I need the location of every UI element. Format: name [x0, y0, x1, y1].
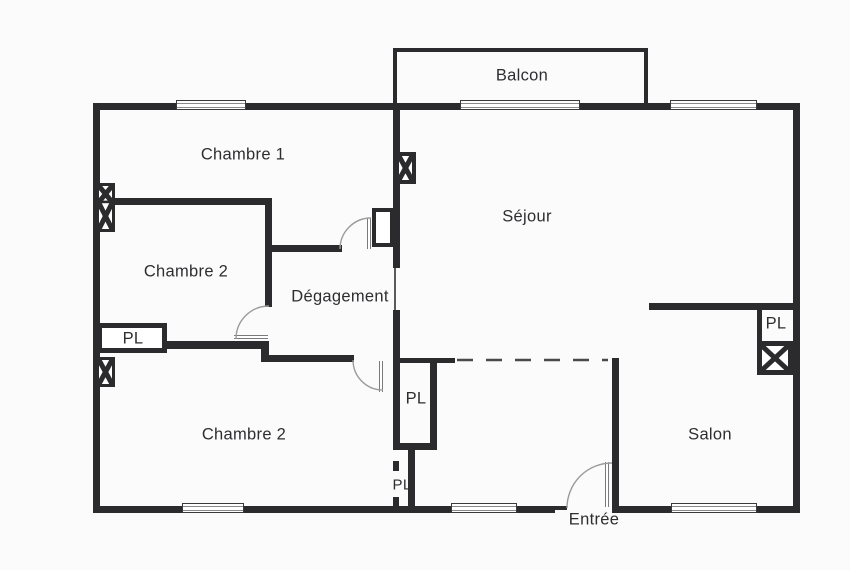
door-leaf-entree	[605, 462, 609, 507]
window-symbol	[670, 100, 757, 110]
door-leaf-chambre2	[234, 335, 268, 339]
room-label-chambre2-bottom: Chambre 2	[202, 426, 286, 445]
balcony-wall-left	[393, 48, 397, 107]
small-duct-box	[372, 208, 394, 247]
wall-bottom-jamb	[555, 506, 567, 510]
window-pane	[461, 103, 579, 108]
closet-label-pl-center: PL	[406, 390, 427, 409]
balcony-wall-top	[393, 48, 648, 52]
window-pane	[452, 506, 516, 511]
duct-shaft-icon	[395, 152, 416, 184]
wall-chambre2mid-top	[115, 198, 272, 205]
wall-degagement-north	[265, 245, 342, 252]
wall-pl-lower-jamb-top	[393, 461, 399, 471]
wall-left	[93, 103, 100, 513]
window-symbol	[451, 503, 517, 513]
window-pane	[177, 103, 245, 108]
room-label-degagement: Dégagement	[291, 288, 388, 307]
duct-shaft-icon	[96, 357, 115, 387]
wall-center-lower	[393, 358, 400, 450]
wall-center-opening	[394, 268, 396, 310]
wall-pl-center-right	[430, 358, 437, 450]
window-pane	[671, 103, 756, 108]
room-label-balcon: Balcon	[496, 67, 548, 86]
room-label-chambre1: Chambre 1	[201, 146, 285, 165]
wall-pl-center-bottom	[393, 443, 437, 450]
closet-label-pl-left: PL	[123, 330, 144, 349]
window-symbol	[460, 100, 580, 110]
wall-pl-center-top	[397, 358, 455, 363]
duct-shaft-icon	[757, 341, 793, 375]
closet-label-pl-lower: PL	[393, 477, 412, 494]
closet-label-pl-right: PL	[766, 315, 787, 334]
wall-chambre2mid-right	[265, 198, 272, 307]
window-pane	[672, 506, 756, 511]
wall-pl-right-side	[757, 308, 762, 343]
door-arcs-layer	[0, 0, 850, 570]
door-leaf-chambre1	[367, 218, 371, 249]
room-label-entree: Entrée	[569, 511, 619, 530]
room-label-sejour: Séjour	[502, 208, 552, 227]
wall-pl-lower-jamb-bot	[393, 497, 399, 506]
window-symbol	[671, 503, 757, 513]
window-symbol	[182, 503, 244, 513]
wall-sejour-salon	[649, 303, 793, 310]
wall-center-mid	[393, 310, 400, 363]
window-symbol	[176, 100, 246, 110]
balcony-wall-right	[644, 48, 648, 107]
room-label-chambre2-mid: Chambre 2	[144, 263, 228, 282]
wall-center-upper	[393, 103, 400, 268]
wall-salon-left	[612, 358, 619, 507]
door-leaf-chambre2b	[379, 361, 383, 392]
room-label-salon: Salon	[688, 426, 732, 445]
wall-right	[793, 103, 800, 513]
duct-shaft-icon	[96, 183, 115, 232]
floor-plan-canvas: Balcon Chambre 1 Séjour Chambre 2 Dégage…	[0, 0, 850, 570]
window-pane	[183, 506, 243, 511]
wall-chambre2-divider	[167, 341, 268, 349]
wall-degagement-south	[261, 355, 354, 362]
